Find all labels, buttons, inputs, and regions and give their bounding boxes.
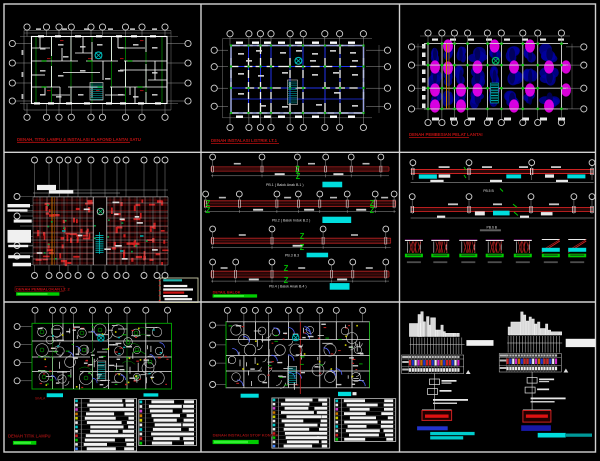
svg-text:DENAH PEMBESIAN PELAT LANTAI: DENAH PEMBESIAN PELAT LANTAI	[409, 132, 483, 137]
svg-text:PB.5 B: PB.5 B	[483, 189, 494, 193]
svg-text:PB.6 B: PB.6 B	[487, 225, 498, 229]
svg-text:PB.3 B.3: PB.3 B.3	[285, 254, 299, 258]
svg-text:DENAH TITIK LAMPU: DENAH TITIK LAMPU	[8, 434, 51, 439]
svg-text:SKALA: SKALA	[35, 397, 46, 401]
svg-text:PB.1 ( Balok Anak B.1 ): PB.1 ( Balok Anak B.1 )	[266, 183, 304, 187]
svg-text:DETAIL BALOK: DETAIL BALOK	[213, 290, 241, 294]
svg-text:PB.4 ( Balok Anak B.4 ): PB.4 ( Balok Anak B.4 )	[269, 285, 307, 289]
svg-text:PB.2 ( Balok Induk B.2 ): PB.2 ( Balok Induk B.2 )	[272, 219, 310, 223]
svg-text:DENAH INSTALASI STOP KONTAK: DENAH INSTALASI STOP KONTAK	[213, 432, 279, 437]
svg-text:DENAH, TITIK LAMPU & INSTALASI: DENAH, TITIK LAMPU & INSTALASI PLAFOND L…	[17, 137, 141, 142]
svg-text:DENAH PEMBALOKAN LT. 2: DENAH PEMBALOKAN LT. 2	[16, 287, 70, 292]
svg-text:DENAH INSTALASI LISTRIK LT.1: DENAH INSTALASI LISTRIK LT.1	[211, 138, 278, 143]
